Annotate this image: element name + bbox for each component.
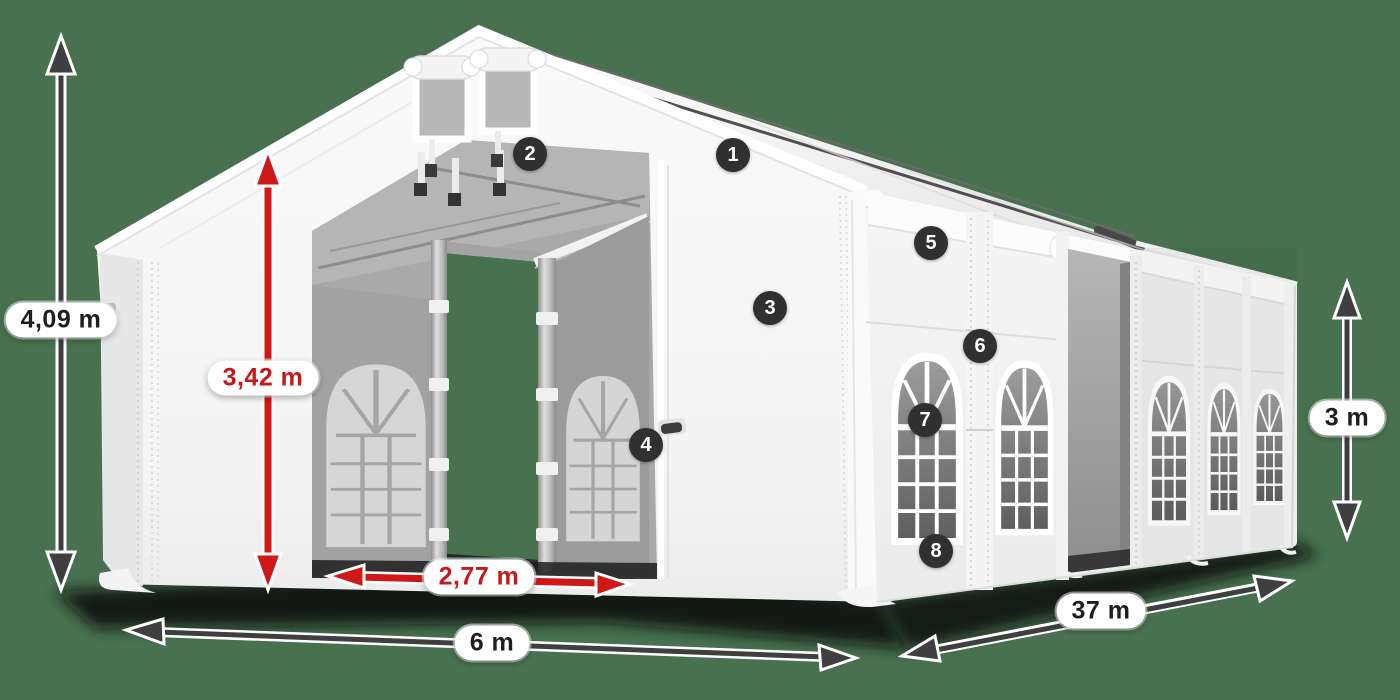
entrance-width-label: 2,77 m (424, 560, 535, 595)
entrance-height-label: 3,42 m (208, 361, 319, 396)
callout-marker-1[interactable]: 1 (716, 138, 750, 172)
side-height-label: 3 m (1310, 401, 1385, 436)
length-label: 37 m (1057, 594, 1146, 629)
tent-entrance-opening (312, 140, 657, 579)
callout-marker-3[interactable]: 3 (753, 291, 787, 325)
tent-diagram-stage: 4,09 m 3,42 m 2,77 m 6 m 37 m 3 m 1 2 3 … (0, 0, 1400, 700)
callout-marker-6[interactable]: 6 (963, 329, 997, 363)
callout-marker-4[interactable]: 4 (629, 428, 663, 462)
tent-illustration (0, 0, 1400, 700)
callout-marker-5[interactable]: 5 (914, 226, 948, 260)
callout-marker-2[interactable]: 2 (513, 137, 547, 171)
callout-marker-8[interactable]: 8 (919, 534, 953, 568)
front-width-label: 6 m (455, 626, 530, 661)
total-height-label: 4,09 m (6, 303, 117, 338)
callout-marker-7[interactable]: 7 (908, 403, 942, 437)
